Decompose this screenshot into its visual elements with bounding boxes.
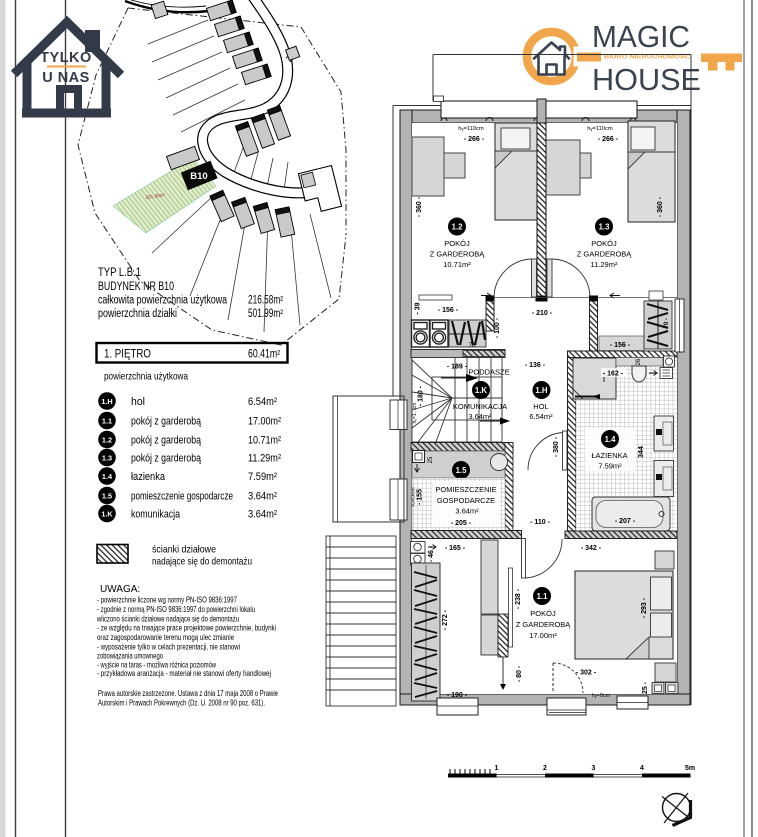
svg-text:powierzchnia działki: powierzchnia działki: [98, 308, 177, 320]
svg-text:UWAGA:: UWAGA:: [100, 584, 140, 595]
svg-text:hᵧ=1...cm: hᵧ=1...cm: [412, 403, 418, 424]
svg-text:3: 3: [592, 765, 596, 772]
svg-text:- 156 -: - 156 -: [438, 307, 459, 314]
svg-text:nadające się do demontażu: nadające się do demontażu: [152, 556, 252, 568]
svg-text:3.64m²: 3.64m²: [248, 509, 277, 521]
svg-text:1.2: 1.2: [452, 223, 464, 232]
svg-text:- 156 -: - 156 -: [610, 342, 631, 349]
svg-text:- 110 -: - 110 -: [530, 519, 551, 526]
svg-text:4: 4: [640, 765, 644, 772]
svg-text:3.64m²: 3.64m²: [468, 412, 492, 421]
svg-text:- 342 -: - 342 -: [581, 545, 602, 552]
svg-text:BUDYNEK NR B10: BUDYNEK NR B10: [98, 281, 174, 293]
svg-text:1.5: 1.5: [456, 466, 468, 475]
svg-text:pokój z garderobą: pokój z garderobą: [131, 416, 201, 428]
svg-text:3.64m²: 3.64m²: [455, 507, 479, 516]
svg-text:1.5: 1.5: [102, 492, 112, 501]
svg-text:78: 78: [469, 343, 476, 349]
svg-text:POKÓJ: POKÓJ: [444, 239, 470, 248]
svg-text:- powierzchnie liczone wg norm: - powierzchnie liczone wg normy PN-ISO 9…: [97, 595, 237, 605]
svg-text:25: 25: [428, 456, 434, 463]
svg-text:11.29m²: 11.29m²: [248, 453, 281, 465]
svg-text:TYLKO: TYLKO: [40, 50, 92, 66]
svg-text:- 360 -: - 360 -: [657, 196, 664, 217]
svg-text:- 189 -: - 189 -: [447, 364, 468, 371]
svg-text:hᵧ=110cm: hᵧ=110cm: [587, 126, 613, 132]
svg-text:Z GARDEROBĄ: Z GARDEROBĄ: [430, 250, 486, 259]
svg-text:- 180 -: - 180 -: [418, 385, 425, 406]
svg-text:TYP L.B.1: TYP L.B.1: [98, 267, 141, 279]
svg-text:344: 344: [638, 446, 645, 458]
svg-text:- 155: - 155: [417, 489, 424, 505]
svg-text:1.4: 1.4: [605, 435, 617, 444]
svg-text:Z GARDEROBĄ: Z GARDEROBĄ: [516, 620, 572, 629]
svg-text:- 210 -: - 210 -: [532, 310, 553, 317]
svg-text:10.71m²: 10.71m²: [248, 435, 281, 447]
svg-text:- 266 -: - 266 -: [598, 136, 619, 143]
svg-text:17.00m²: 17.00m²: [529, 631, 557, 640]
svg-text:całkowita powierzchnia użytkow: całkowita powierzchnia użytkowa: [98, 295, 227, 307]
svg-text:10.71m²: 10.71m²: [443, 260, 471, 269]
svg-text:216.58m²: 216.58m²: [248, 295, 283, 307]
svg-text:- 293 -: - 293 -: [641, 597, 648, 618]
svg-text:3.64m²: 3.64m²: [248, 491, 277, 503]
svg-text:26: 26: [636, 358, 642, 365]
svg-text:1.3: 1.3: [102, 454, 112, 463]
svg-text:- 136 -: - 136 -: [525, 362, 546, 369]
svg-text:1.H: 1.H: [535, 386, 548, 395]
svg-text:501.99m²: 501.99m²: [248, 308, 283, 320]
svg-text:- 162 -: - 162 -: [603, 371, 624, 378]
svg-text:hᵧ=5.6cm: hᵧ=5.6cm: [411, 487, 416, 506]
svg-text:Prawa autorskie zastrzeżone. U: Prawa autorskie zastrzeżone. Ustawa z dn…: [98, 688, 278, 698]
svg-text:1. PIĘTRO: 1. PIĘTRO: [104, 349, 151, 361]
svg-text:1.K: 1.K: [101, 510, 113, 519]
svg-text:5m: 5m: [685, 765, 695, 772]
svg-text:1.1: 1.1: [537, 592, 549, 601]
svg-text:hol: hol: [131, 396, 145, 408]
svg-text:- 380 -: - 380 -: [553, 436, 560, 457]
svg-text:łazienka: łazienka: [131, 471, 165, 483]
svg-text:HOUSE: HOUSE: [592, 63, 701, 97]
svg-text:- 100 -: - 100 -: [494, 317, 501, 338]
svg-text:HOL: HOL: [533, 402, 548, 411]
svg-text:1.4: 1.4: [102, 472, 113, 481]
svg-text:1.K: 1.K: [475, 386, 488, 395]
svg-text:Z GARDEROBĄ: Z GARDEROBĄ: [577, 250, 633, 259]
svg-text:hᵧ=0cm: hᵧ=0cm: [592, 693, 611, 699]
svg-text:7.59m²: 7.59m²: [248, 471, 277, 483]
svg-text:pokój z garderobą: pokój z garderobą: [131, 435, 201, 447]
svg-text:POKÓJ: POKÓJ: [530, 609, 556, 618]
svg-text:POMIESZCZENIE: POMIESZCZENIE: [435, 485, 496, 494]
svg-text:- 205 -: - 205 -: [451, 520, 472, 527]
svg-text:- 272 -: - 272 -: [442, 609, 449, 630]
svg-text:- 238 -: - 238 -: [515, 588, 522, 609]
svg-text:1.2: 1.2: [102, 436, 112, 445]
svg-text:- 46 -: - 46 -: [428, 545, 435, 562]
svg-text:- 266 -: - 266 -: [464, 136, 485, 143]
svg-text:ŁAZIENKA: ŁAZIENKA: [591, 451, 627, 460]
svg-text:B10: B10: [190, 171, 207, 182]
svg-text:6.54m²: 6.54m²: [529, 412, 553, 421]
svg-text:- przykładowa aranżacja - mate: - przykładowa aranżacja - materiał nie s…: [97, 668, 271, 678]
svg-text:1.3: 1.3: [599, 223, 611, 232]
svg-text:- 39: - 39: [415, 302, 422, 314]
svg-text:Autorskim i Prawach Pokrewnych: Autorskim i Prawach Pokrewnych (Dz. U. 2…: [98, 698, 265, 708]
svg-text:GOSPODARCZE: GOSPODARCZE: [437, 496, 495, 505]
svg-text:- 302 -: - 302 -: [576, 670, 597, 677]
svg-text:PODDASZE: PODDASZE: [468, 368, 509, 377]
svg-text:11.29m²: 11.29m²: [591, 260, 618, 269]
svg-text:2: 2: [543, 765, 547, 772]
svg-text:hᵧ=110cm: hᵧ=110cm: [458, 126, 484, 132]
svg-text:- 207 -: - 207 -: [615, 518, 636, 525]
svg-text:1.1: 1.1: [102, 417, 112, 426]
svg-text:- 165 -: - 165 -: [445, 545, 466, 552]
svg-text:ścianki działowe: ścianki działowe: [152, 544, 216, 556]
svg-text:U NAS: U NAS: [42, 70, 90, 86]
svg-text:- 70 -: - 70 -: [664, 318, 670, 332]
svg-text:17.00m²: 17.00m²: [248, 416, 281, 428]
svg-text:6.54m²: 6.54m²: [248, 396, 277, 408]
svg-text:7.59m²: 7.59m²: [598, 462, 622, 471]
svg-text:60.41m²: 60.41m²: [248, 349, 280, 361]
svg-text:powierzchnia użytkowa: powierzchnia użytkowa: [104, 372, 188, 383]
svg-text:- 80 -: - 80 -: [516, 665, 523, 682]
svg-text:- 360 -: - 360 -: [416, 196, 423, 217]
svg-text:KOMUNIKACJA: KOMUNIKACJA: [453, 402, 507, 411]
svg-text:MAGIC: MAGIC: [592, 20, 690, 54]
svg-text:POKÓJ: POKÓJ: [591, 239, 617, 248]
svg-text:pomieszczenie gospodarcze: pomieszczenie gospodarcze: [131, 491, 233, 503]
svg-text:1.H: 1.H: [101, 397, 112, 406]
svg-text:1: 1: [495, 765, 499, 772]
svg-text:25 -: 25 -: [642, 681, 649, 694]
svg-text:komunikacja: komunikacja: [131, 509, 180, 521]
svg-text:pokój z garderobą: pokój z garderobą: [131, 453, 201, 465]
